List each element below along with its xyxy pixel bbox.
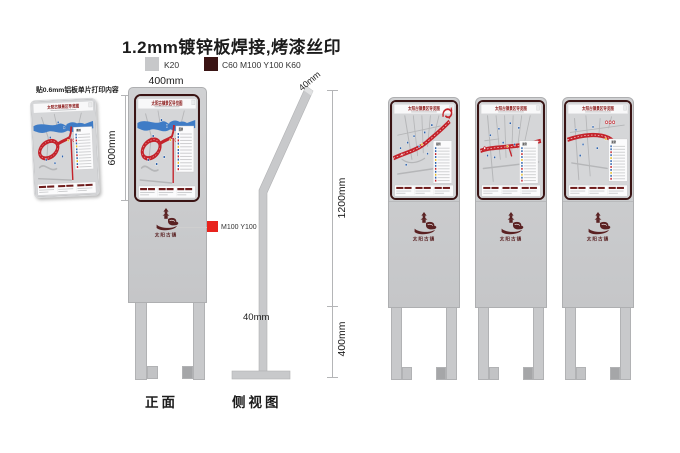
stand-leg-left xyxy=(565,308,576,380)
stand-leg-right xyxy=(620,308,631,380)
front-map-frame xyxy=(134,94,200,202)
material-swatch-dark-red xyxy=(204,57,218,71)
stand-foot-left xyxy=(402,367,412,380)
stand-logo xyxy=(407,211,441,243)
stand-logo xyxy=(581,211,615,243)
design-sheet: 太阳古镇景区导览图 图例 xyxy=(0,0,680,453)
aluminium-panel-preview xyxy=(30,98,100,199)
front-logo xyxy=(149,207,183,239)
stand-seam xyxy=(389,201,459,202)
side-view-label: 侧视图 xyxy=(232,391,282,411)
page-title: 1.2mm镀锌板焊接,烤漆丝印 xyxy=(122,33,341,58)
material-label-dark-red: C60 M100 Y100 K60 xyxy=(222,60,301,70)
side-dim-line xyxy=(332,90,333,378)
map-graphic-2 xyxy=(479,102,543,198)
stand-render-2 xyxy=(475,97,547,380)
material-label-k20: K20 xyxy=(164,60,179,70)
panel-note: 贴0.6mm铝板单片打印内容 xyxy=(36,84,119,94)
stand-leg-left xyxy=(478,308,489,380)
stand-map-frame xyxy=(564,100,632,200)
stand-logo xyxy=(494,211,528,243)
callout-leader-line xyxy=(176,227,207,228)
dim-tick xyxy=(327,377,338,378)
stand-leg-right xyxy=(533,308,544,380)
stand-foot-right xyxy=(610,367,620,380)
dim-tick xyxy=(327,90,338,91)
stand-seam xyxy=(476,201,546,202)
stand-map-frame xyxy=(477,100,545,200)
stand-foot-left xyxy=(576,367,586,380)
stand-foot-right xyxy=(523,367,533,380)
material-swatch-k20 xyxy=(145,57,159,71)
side-view-profile xyxy=(228,78,343,383)
stand-map-frame xyxy=(390,100,458,200)
side-post-width-dim: 40mm xyxy=(243,312,269,323)
front-leg-right xyxy=(193,303,205,380)
stand-foot-right xyxy=(436,367,446,380)
map-graphic-3 xyxy=(566,102,630,198)
logo-color-swatch xyxy=(207,221,218,232)
stand-seam xyxy=(563,201,633,202)
stand-foot-left xyxy=(489,367,499,380)
front-foot-left xyxy=(147,366,158,379)
front-height-dim-line xyxy=(125,95,126,201)
front-width-dim: 400mm xyxy=(133,75,199,87)
front-leg-left xyxy=(135,303,147,380)
map-graphic-panel xyxy=(31,99,99,198)
map-graphic-1 xyxy=(392,102,456,198)
stand-render-1 xyxy=(388,97,460,380)
front-view-label: 正面 xyxy=(145,391,178,411)
front-foot-right xyxy=(182,366,193,379)
side-lower-height-dim: 400mm xyxy=(336,304,348,374)
stand-leg-left xyxy=(391,308,402,380)
stand-leg-right xyxy=(446,308,457,380)
map-graphic-front xyxy=(136,96,198,200)
side-upper-height-dim: 1200mm xyxy=(336,163,348,233)
front-height-dim: 600mm xyxy=(106,118,118,178)
stand-render-3 xyxy=(562,97,634,380)
